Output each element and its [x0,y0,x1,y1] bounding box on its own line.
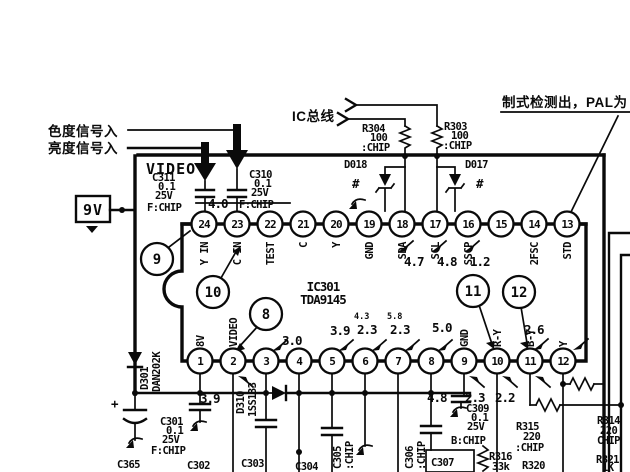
svg-text::CHIP: :CHIP [344,441,356,470]
svg-text:GND: GND [459,329,471,347]
svg-text:F:CHIP: F:CHIP [147,202,182,214]
svg-text:10: 10 [491,355,503,368]
svg-text:D018: D018 [344,159,367,171]
svg-text:B:CHIP: B:CHIP [451,435,486,447]
svg-text:D301: D301 [139,367,151,390]
label-r304: R304 100 :CHIP [361,123,390,154]
svg-text:1.2: 1.2 [470,254,490,269]
svg-text:8: 8 [428,355,434,368]
label-line-voltage: 4.0 [208,196,228,211]
label-r315: R315 220 :CHIP [515,421,544,454]
schematic-page: 9 10 8 11 12 2423 2221 2019 1817 1615 14… [0,0,630,472]
label-r303: R303 100 :CHIP [443,121,472,152]
label-ic-bus: IC总线 [292,108,335,124]
svg-text:F:CHIP: F:CHIP [239,199,274,211]
svg-text:GND: GND [364,242,376,260]
svg-text:STD: STD [562,242,574,260]
cap-c365 [124,394,146,448]
resistor-r315 [536,399,560,411]
svg-text:11: 11 [524,355,537,368]
svg-text:3: 3 [263,355,269,368]
svg-text:DAN202K: DAN202K [151,351,163,392]
svg-text::CHIP: :CHIP [515,442,544,454]
svg-text::CHIP: :CHIP [443,140,472,152]
label-chroma-in: 色度信号入 [48,123,118,139]
svg-text:18: 18 [396,218,408,231]
resistor-r316 [478,446,488,471]
label-c304: C304 [295,461,318,472]
svg-text:16: 16 [462,218,475,231]
svg-text:21: 21 [297,218,310,231]
svg-text:9: 9 [461,355,467,368]
svg-text:3.9: 3.9 [330,323,350,338]
label-d301: D301 DAN202K [139,351,163,392]
standard-detect-callout [501,112,630,212]
svg-text:2.3: 2.3 [357,322,377,337]
label-luma-in: 亮度信号入 [48,140,118,156]
svg-text:F:CHIP: F:CHIP [151,445,186,457]
svg-text:33k: 33k [492,461,510,472]
svg-text:8V: 8V [195,334,207,347]
label-c306: C306 :CHIP [404,441,428,470]
svg-text::CHIP: :CHIP [416,441,428,470]
svg-text:22: 22 [264,218,276,231]
svg-text:2: 2 [230,355,236,368]
label-c307: C307 [431,457,454,469]
label-r321: R321 1K [596,454,619,472]
diode-d301 [128,352,142,367]
svg-text:25V: 25V [251,187,269,199]
svg-text:14: 14 [528,218,541,231]
svg-text:23: 23 [231,218,243,231]
label-r320: R320 [522,460,545,472]
svg-text:4.8: 4.8 [437,254,457,269]
svg-text:C IN: C IN [232,242,244,265]
svg-text:24: 24 [198,218,211,231]
label-c305: C305 :CHIP [332,441,356,470]
svg-text:25V: 25V [155,190,173,202]
svg-text:4.3: 4.3 [354,312,369,322]
label-d018: D018 # [344,159,367,191]
chroma-arrow [233,124,241,150]
svg-text:1K: 1K [602,462,615,472]
pin-names-top: Y IN C IN TEST C Y GND SDA SCL SSCP 2FSC… [199,241,574,269]
label-c301: C301 0.1 25V F:CHIP [151,416,186,457]
svg-text:#: # [476,176,484,191]
ic-part: TDA9145 [300,292,346,307]
svg-text:5.0: 5.0 [432,320,452,335]
label-c303: C303 [241,458,264,470]
svg-text:25V: 25V [467,421,485,433]
svg-text:3.9: 3.9 [200,391,220,406]
resistor-r314 [570,378,594,390]
svg-text:19: 19 [363,218,375,231]
label-d310: D310 1SS133 [235,382,259,417]
svg-text:#: # [352,176,360,191]
balloon-10-num: 10 [205,285,222,301]
svg-text:2FSC: 2FSC [529,242,541,265]
svg-text:3.0: 3.0 [282,333,302,348]
svg-text:7: 7 [395,355,401,368]
svg-text:1SS133: 1SS133 [247,382,259,417]
svg-text:4.8: 4.8 [427,390,447,405]
svg-text:2.3: 2.3 [390,322,410,337]
gnd-drop [356,393,372,455]
svg-text:Y IN: Y IN [199,242,211,265]
zener-d018 [376,167,405,211]
input-lines [128,124,248,190]
svg-text:5: 5 [329,355,335,368]
svg-text:12: 12 [557,355,569,368]
svg-text:C: C [298,242,310,248]
svg-text:15: 15 [495,218,507,231]
svg-text:Y: Y [331,241,343,248]
svg-text:13: 13 [561,218,573,231]
label-r316: R316 33k [489,451,512,472]
balloon-9-num: 9 [153,252,161,268]
svg-text:C365: C365 [117,459,140,471]
svg-text::CHIP: :CHIP [361,142,390,154]
diode-d310 [272,386,286,400]
balloon-8-num: 8 [262,307,270,323]
svg-text:D310: D310 [235,391,247,414]
label-9v: 9V [83,201,103,219]
svg-text:20: 20 [330,218,342,231]
svg-text:2.6: 2.6 [524,322,544,337]
label-standard-detect: 制式检测出，PAL为 [502,94,628,110]
gnd-symbol [349,199,365,209]
svg-text:Y: Y [558,340,570,347]
svg-text:2.2: 2.2 [495,390,515,405]
schematic-canvas: 9 10 8 11 12 2423 2221 2019 1817 1615 14… [0,0,630,472]
svg-text:CHIP: CHIP [597,435,620,447]
svg-text:+: + [111,396,119,411]
resistor-r304 [400,126,410,211]
svg-text:C306: C306 [404,446,416,469]
label-c311: C311 0.1 25V F:CHIP [147,172,182,214]
svg-text:17: 17 [429,218,441,231]
label-d017: D017 # [465,159,488,191]
zener-d017 [437,167,464,211]
balloon-11-num: 11 [465,284,482,300]
svg-text:R-Y: R-Y [492,328,504,347]
svg-text:C305: C305 [332,446,344,469]
resistor-r303 [432,126,442,211]
ic-notch [164,224,191,361]
balloon-12-num: 12 [511,285,528,301]
svg-text:5.8: 5.8 [387,312,402,322]
svg-text:D017: D017 [465,159,488,171]
label-c302: C302 [187,460,210,472]
svg-text:TEST: TEST [265,242,277,265]
luma-arrow [201,142,209,163]
svg-text:4.7: 4.7 [404,254,424,269]
label-r314: R314 220 CHIP [597,415,620,447]
svg-text:VIDEO: VIDEO [228,318,240,347]
